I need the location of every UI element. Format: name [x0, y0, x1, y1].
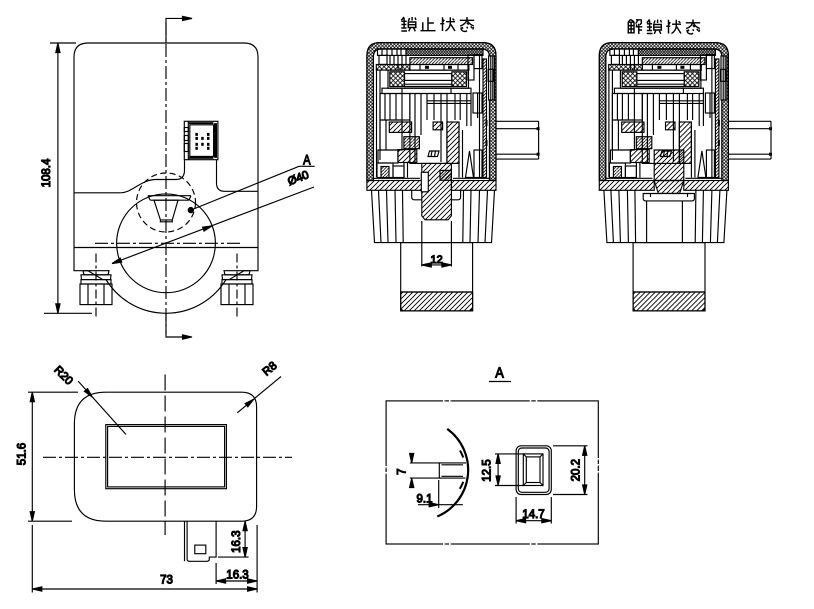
svg-text:51.6: 51.6: [17, 443, 29, 465]
svg-text:A: A: [303, 152, 311, 167]
svg-text:73: 73: [160, 575, 173, 587]
svg-text:14.7: 14.7: [522, 509, 544, 521]
svg-text:108.4: 108.4: [41, 158, 53, 187]
svg-text:12: 12: [430, 254, 442, 266]
svg-text:9.1: 9.1: [417, 494, 433, 506]
svg-text:A: A: [495, 363, 504, 380]
svg-text:20.2: 20.2: [571, 459, 583, 481]
svg-text:16.3: 16.3: [226, 570, 248, 582]
svg-text:7: 7: [397, 468, 409, 474]
svg-text:16.3: 16.3: [231, 531, 243, 553]
svg-text:12.5: 12.5: [481, 459, 493, 481]
